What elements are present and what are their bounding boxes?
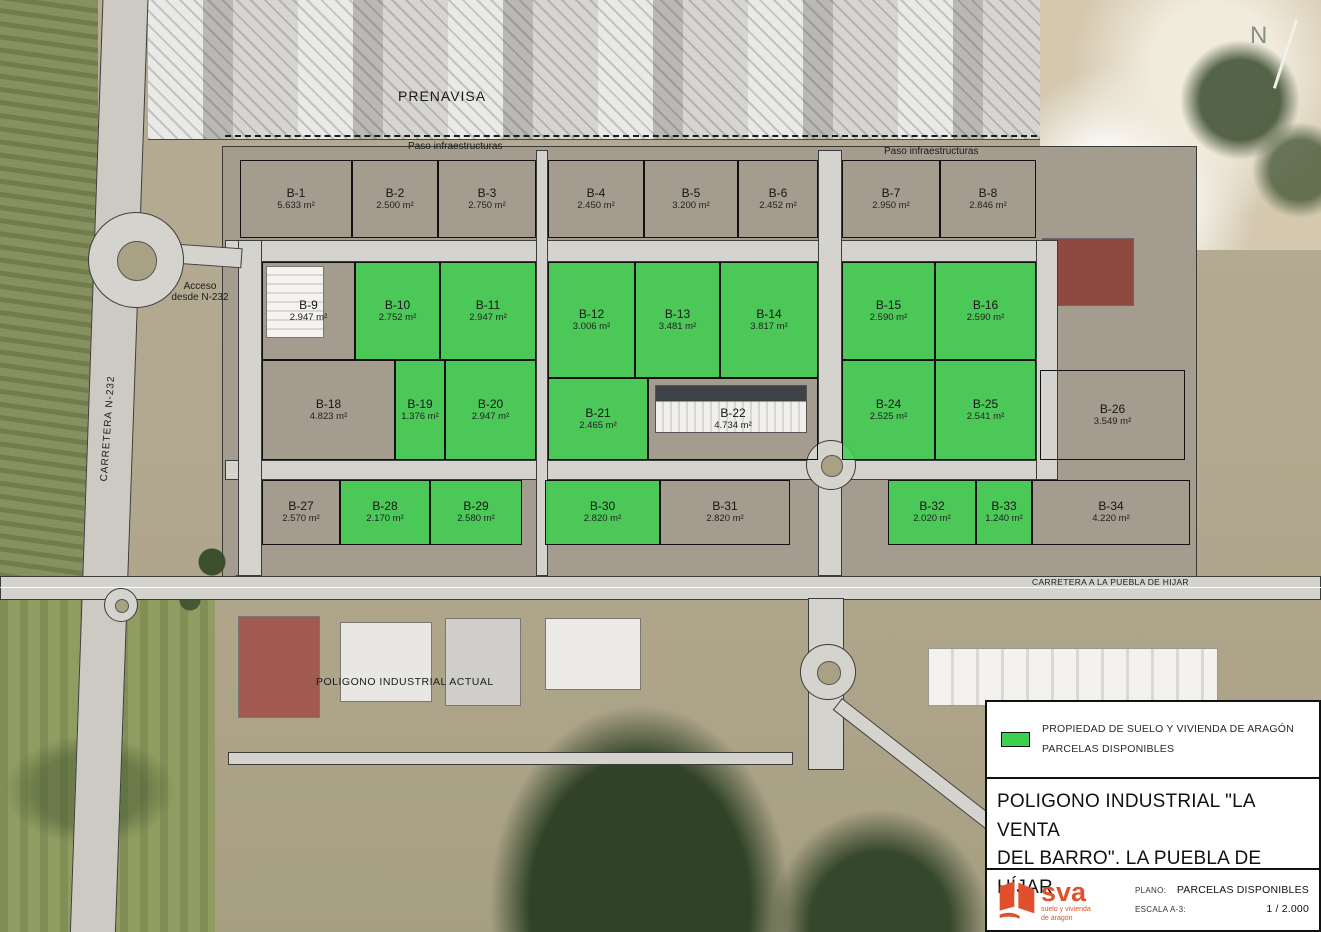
sva-logo: sva suelo y vivienda de aragón	[987, 870, 1135, 930]
parcel-label: B-22	[720, 407, 745, 420]
parcel-b-1: B-15.633 m²	[240, 160, 352, 238]
plano-row: PLANO: PARCELAS DISPONIBLES	[1135, 884, 1309, 896]
parcel-label: B-28	[372, 500, 397, 513]
parcel-area: 3.549 m²	[1094, 417, 1132, 427]
parcel-area: 2.752 m²	[379, 313, 417, 323]
parcel-area: 3.006 m²	[573, 322, 611, 332]
parcel-b-21: B-212.465 m²	[548, 378, 648, 460]
parcel-area: 2.541 m²	[967, 412, 1005, 422]
sva-logo-text: sva	[1041, 880, 1091, 904]
parcel-label: B-34	[1098, 500, 1123, 513]
parcel-b-20: B-202.947 m²	[445, 360, 536, 460]
parcel-label: B-25	[973, 398, 998, 411]
parcel-label: B-12	[579, 308, 604, 321]
parcel-label: B-15	[876, 299, 901, 312]
parcel-area: 2.170 m²	[366, 514, 404, 524]
parcel-b-16: B-162.590 m²	[935, 262, 1036, 360]
parcel-b-28: B-282.170 m²	[340, 480, 430, 545]
parcel-label: B-30	[590, 500, 615, 513]
parcel-b-2: B-22.500 m²	[352, 160, 438, 238]
legend-swatch-available	[1001, 732, 1030, 747]
parcel-b-15: B-152.590 m²	[842, 262, 935, 360]
info-rows: PLANO: PARCELAS DISPONIBLES ESCALA A-3: …	[1135, 870, 1319, 930]
parcel-b-10: B-102.752 m²	[355, 262, 440, 360]
parcel-label: B-8	[979, 187, 998, 200]
parcel-label: B-3	[478, 187, 497, 200]
sva-logo-words: sva suelo y vivienda de aragón	[1041, 880, 1091, 924]
parcel-b-32: B-322.020 m²	[888, 480, 976, 545]
parcel-label: B-14	[756, 308, 781, 321]
parcel-label: B-9	[299, 299, 318, 312]
parcel-label: B-21	[585, 407, 610, 420]
plan-title-line1: POLIGONO INDUSTRIAL "LA VENTA	[997, 788, 1309, 845]
parcel-b-9: B-92.947 m²	[262, 262, 355, 360]
parcel-area: 3.481 m²	[659, 322, 697, 332]
parcel-area: 2.947 m²	[290, 313, 328, 323]
parcel-area: 2.820 m²	[584, 514, 622, 524]
parcel-b-22: B-224.734 m²	[648, 378, 818, 460]
parcel-label: B-19	[407, 398, 432, 411]
parcel-b-27: B-272.570 m²	[262, 480, 340, 545]
parcel-b-26: B-263.549 m²	[1040, 370, 1185, 460]
parcel-b-11: B-112.947 m²	[440, 262, 536, 360]
parcel-label: B-31	[712, 500, 737, 513]
label-paso-infraestructuras-left: Paso infraestructuras	[408, 141, 503, 152]
parcel-label: B-5	[682, 187, 701, 200]
parcel-b-18: B-184.823 m²	[262, 360, 395, 460]
parcel-area: 2.450 m²	[577, 201, 615, 211]
parcel-label: B-7	[882, 187, 901, 200]
plano-label: PLANO:	[1135, 886, 1166, 895]
parcel-label: B-33	[991, 500, 1016, 513]
escala-row: ESCALA A-3: 1 / 2.000	[1135, 903, 1309, 915]
parcel-b-3: B-32.750 m²	[438, 160, 536, 238]
parcel-label: B-10	[385, 299, 410, 312]
parcel-label: B-27	[288, 500, 313, 513]
parcel-b-12: B-123.006 m²	[548, 262, 635, 378]
parcel-area: 2.020 m²	[913, 514, 951, 524]
parcel-area: 1.376 m²	[401, 412, 439, 422]
legend-section: PROPIEDAD DE SUELO Y VIVIENDA DE ARAGÓN …	[987, 702, 1319, 779]
parcel-label: B-11	[476, 299, 500, 312]
parcel-b-29: B-292.580 m²	[430, 480, 522, 545]
legend-line1: PROPIEDAD DE SUELO Y VIVIENDA DE ARAGÓN	[1042, 720, 1294, 740]
site-plan-map: B-15.633 m²B-22.500 m²B-32.750 m²B-42.45…	[0, 0, 1321, 932]
parcel-area: 4.734 m²	[714, 421, 752, 431]
parcel-area: 2.750 m²	[468, 201, 506, 211]
parcel-b-19: B-191.376 m²	[395, 360, 445, 460]
parcel-b-25: B-252.541 m²	[935, 360, 1036, 460]
parcel-b-13: B-133.481 m²	[635, 262, 720, 378]
parcel-b-31: B-312.820 m²	[660, 480, 790, 545]
parcel-area: 3.200 m²	[672, 201, 710, 211]
parcel-area: 2.947 m²	[469, 313, 507, 323]
legend-text: PROPIEDAD DE SUELO Y VIVIENDA DE ARAGÓN …	[1042, 720, 1294, 760]
sva-logo-tagline: suelo y vivienda de aragón	[1041, 906, 1091, 924]
north-label: N	[1250, 22, 1267, 50]
parcel-label: B-13	[665, 308, 690, 321]
parcel-area: 2.580 m²	[457, 514, 495, 524]
label-carretera-puebla: CARRETERA A LA PUEBLA DE HIJAR	[1032, 577, 1189, 587]
parcel-b-6: B-62.452 m²	[738, 160, 818, 238]
parcel-label: B-29	[463, 500, 488, 513]
parcel-label: B-4	[587, 187, 606, 200]
escala-value: 1 / 2.000	[1266, 903, 1309, 915]
parcel-area: 2.500 m²	[376, 201, 414, 211]
parcel-area: 2.950 m²	[872, 201, 910, 211]
label-prenavisa: PRENAVISA	[398, 88, 486, 104]
parcel-area: 3.817 m²	[750, 322, 788, 332]
label-paso-infraestructuras-right: Paso infraestructuras	[884, 146, 979, 157]
parcel-area: 2.452 m²	[759, 201, 797, 211]
parcel-b-5: B-53.200 m²	[644, 160, 738, 238]
plano-value: PARCELAS DISPONIBLES	[1177, 884, 1309, 896]
parcel-label: B-32	[919, 500, 944, 513]
parcel-area: 2.846 m²	[969, 201, 1007, 211]
parcel-b-7: B-72.950 m²	[842, 160, 940, 238]
label-poligono-actual: POLIGONO INDUSTRIAL ACTUAL	[316, 676, 494, 688]
parcel-area: 2.465 m²	[579, 421, 617, 431]
escala-label: ESCALA A-3:	[1135, 905, 1186, 914]
parcel-b-34: B-344.220 m²	[1032, 480, 1190, 545]
parcel-label: B-18	[316, 398, 341, 411]
parcel-b-14: B-143.817 m²	[720, 262, 818, 378]
parcel-label: B-24	[876, 398, 901, 411]
parcel-area: 2.820 m²	[706, 514, 744, 524]
parcel-label: B-1	[287, 187, 306, 200]
parcel-area: 2.590 m²	[870, 313, 908, 323]
parcel-label: B-6	[769, 187, 788, 200]
sva-logo-icon	[997, 880, 1037, 924]
parcel-area: 2.570 m²	[282, 514, 320, 524]
parcel-area: 5.633 m²	[277, 201, 315, 211]
parcel-label: B-2	[386, 187, 405, 200]
parcel-area: 4.823 m²	[310, 412, 348, 422]
parcel-b-4: B-42.450 m²	[548, 160, 644, 238]
label-acceso-n232: Acceso desde N-232	[150, 281, 250, 303]
parcel-label: B-20	[478, 398, 503, 411]
parcel-label: B-26	[1100, 403, 1125, 416]
parcel-area: 2.590 m²	[967, 313, 1005, 323]
title-block-panel: PROPIEDAD DE SUELO Y VIVIENDA DE ARAGÓN …	[985, 700, 1321, 932]
parcel-area: 4.220 m²	[1092, 514, 1130, 524]
parcel-area: 2.525 m²	[870, 412, 908, 422]
legend-line2: PARCELAS DISPONIBLES	[1042, 740, 1294, 760]
parcel-area: 2.947 m²	[472, 412, 510, 422]
parcel-b-8: B-82.846 m²	[940, 160, 1036, 238]
parcel-label: B-16	[973, 299, 998, 312]
parcel-b-24: B-242.525 m²	[842, 360, 935, 460]
parcel-b-30: B-302.820 m²	[545, 480, 660, 545]
parcel-b-33: B-331.240 m²	[976, 480, 1032, 545]
info-section: sva suelo y vivienda de aragón PLANO: PA…	[987, 870, 1319, 930]
plan-title: POLIGONO INDUSTRIAL "LA VENTA DEL BARRO"…	[987, 779, 1319, 870]
parcel-area: 1.240 m²	[985, 514, 1023, 524]
